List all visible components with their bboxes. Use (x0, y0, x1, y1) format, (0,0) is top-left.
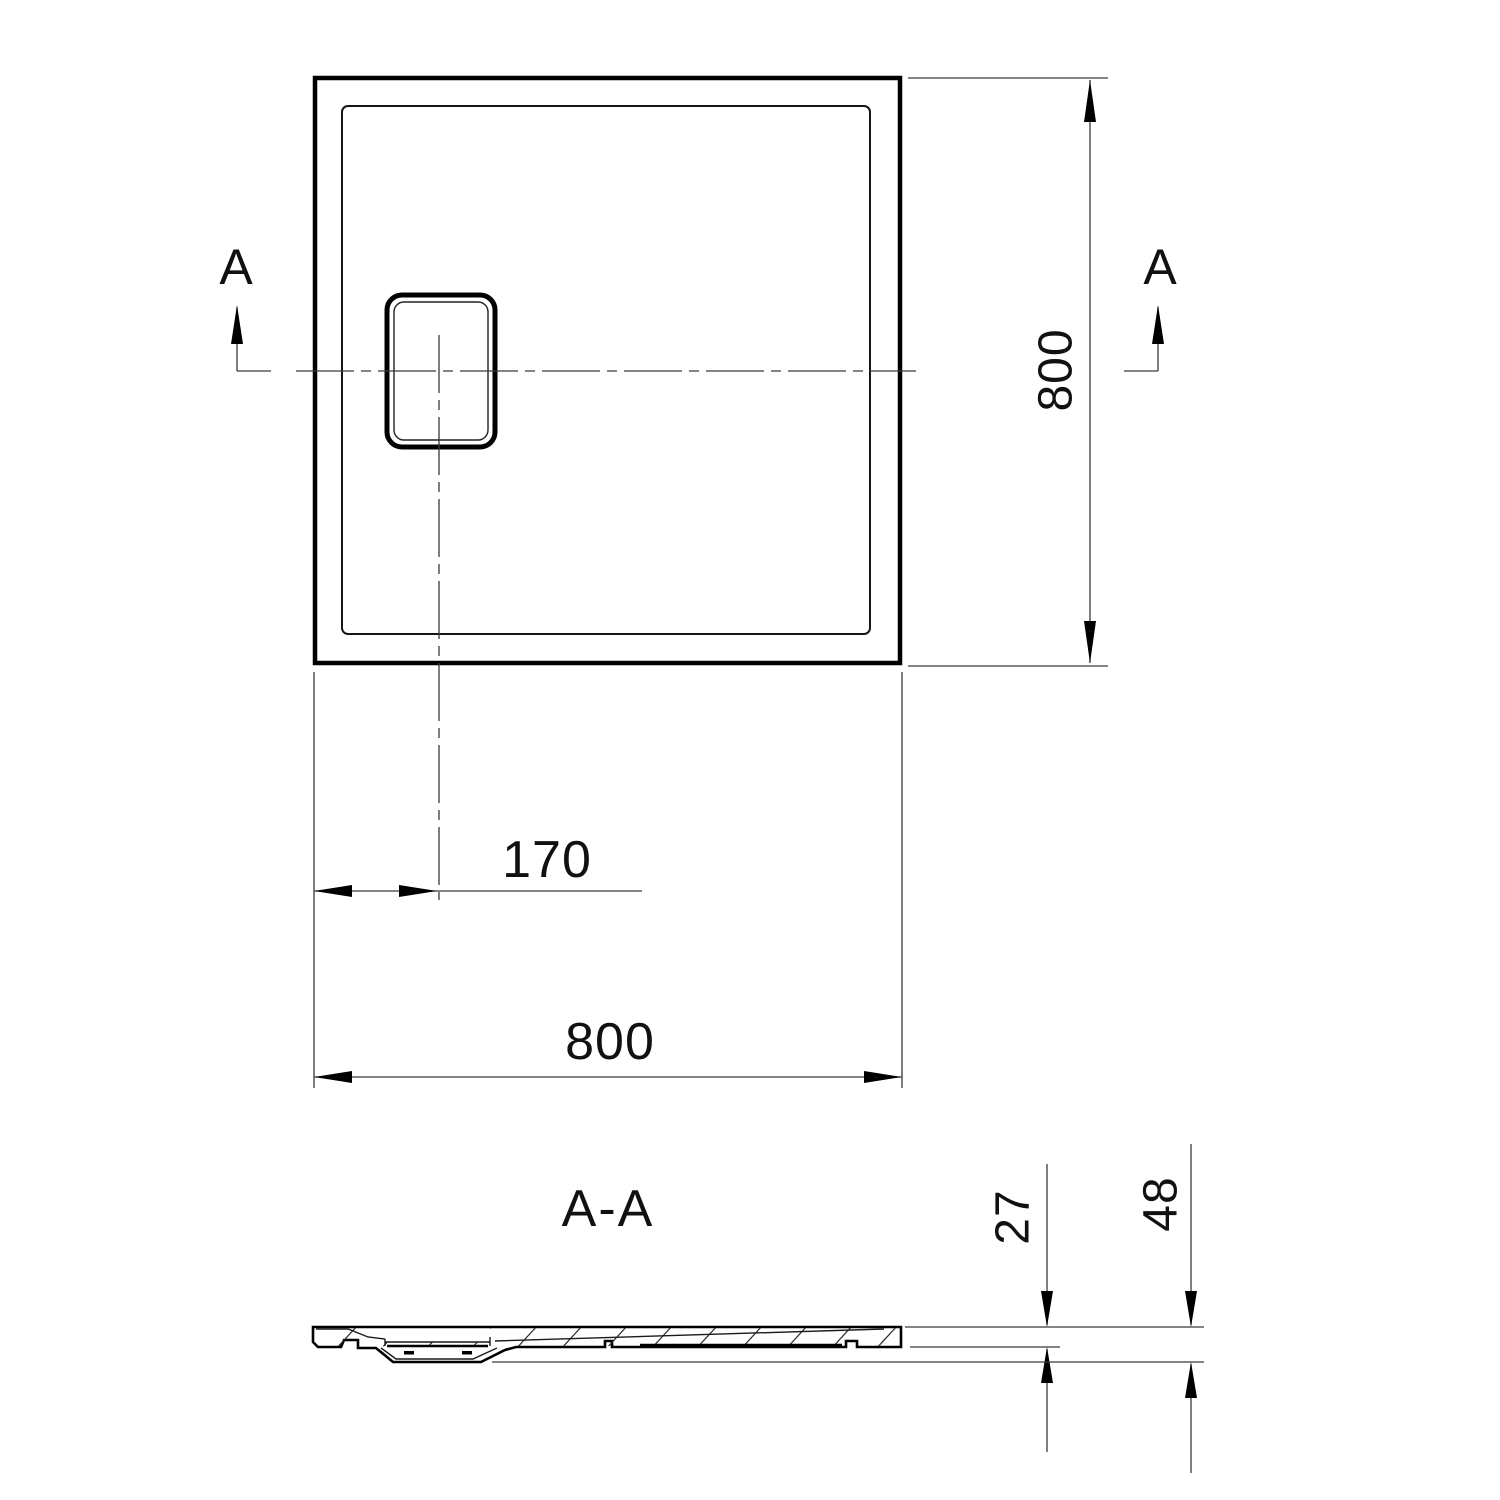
arrowhead-right-icon (399, 885, 437, 897)
dimension-label-depth: 800 (1030, 328, 1083, 411)
section-view-label: A-A (562, 1180, 655, 1238)
section-marker-right: A (1124, 239, 1177, 371)
arrowhead-right-icon (864, 1071, 902, 1083)
dimension-label-total-height: 48 (1135, 1176, 1188, 1231)
arrowhead-up-icon (1084, 80, 1096, 122)
top-view (296, 78, 916, 900)
arrowhead-down-icon (1084, 621, 1096, 663)
dimension-label-drain-offset: 170 (502, 831, 592, 889)
arrowhead-left-icon (314, 1071, 352, 1083)
section-view (290, 1325, 901, 1362)
dimension-label-width: 800 (565, 1013, 655, 1071)
technical-drawing: A A 800 170 800 A-A (0, 0, 1500, 1500)
drain-trap-boss-left (404, 1351, 414, 1355)
drain-trap-boss-right (462, 1351, 472, 1355)
section-marker-left-letter: A (219, 239, 253, 295)
section-marker-right-letter: A (1143, 239, 1177, 295)
arrowhead-up-icon (1041, 1347, 1053, 1383)
section-marker-left-arrow-icon (231, 305, 243, 344)
dimension-label-edge-thickness: 27 (987, 1189, 1040, 1244)
section-marker-left: A (219, 239, 271, 371)
arrowhead-left-icon (314, 885, 352, 897)
dimension-depth-800: 800 (908, 78, 1108, 666)
section-marker-right-arrow-icon (1152, 305, 1164, 344)
drawing-canvas: A A 800 170 800 A-A (0, 0, 1500, 1500)
arrowhead-down-icon (1185, 1291, 1197, 1327)
dimension-width-800: 800 (314, 1013, 902, 1083)
arrowhead-up-icon (1185, 1362, 1197, 1398)
arrowhead-down-icon (1041, 1291, 1053, 1327)
